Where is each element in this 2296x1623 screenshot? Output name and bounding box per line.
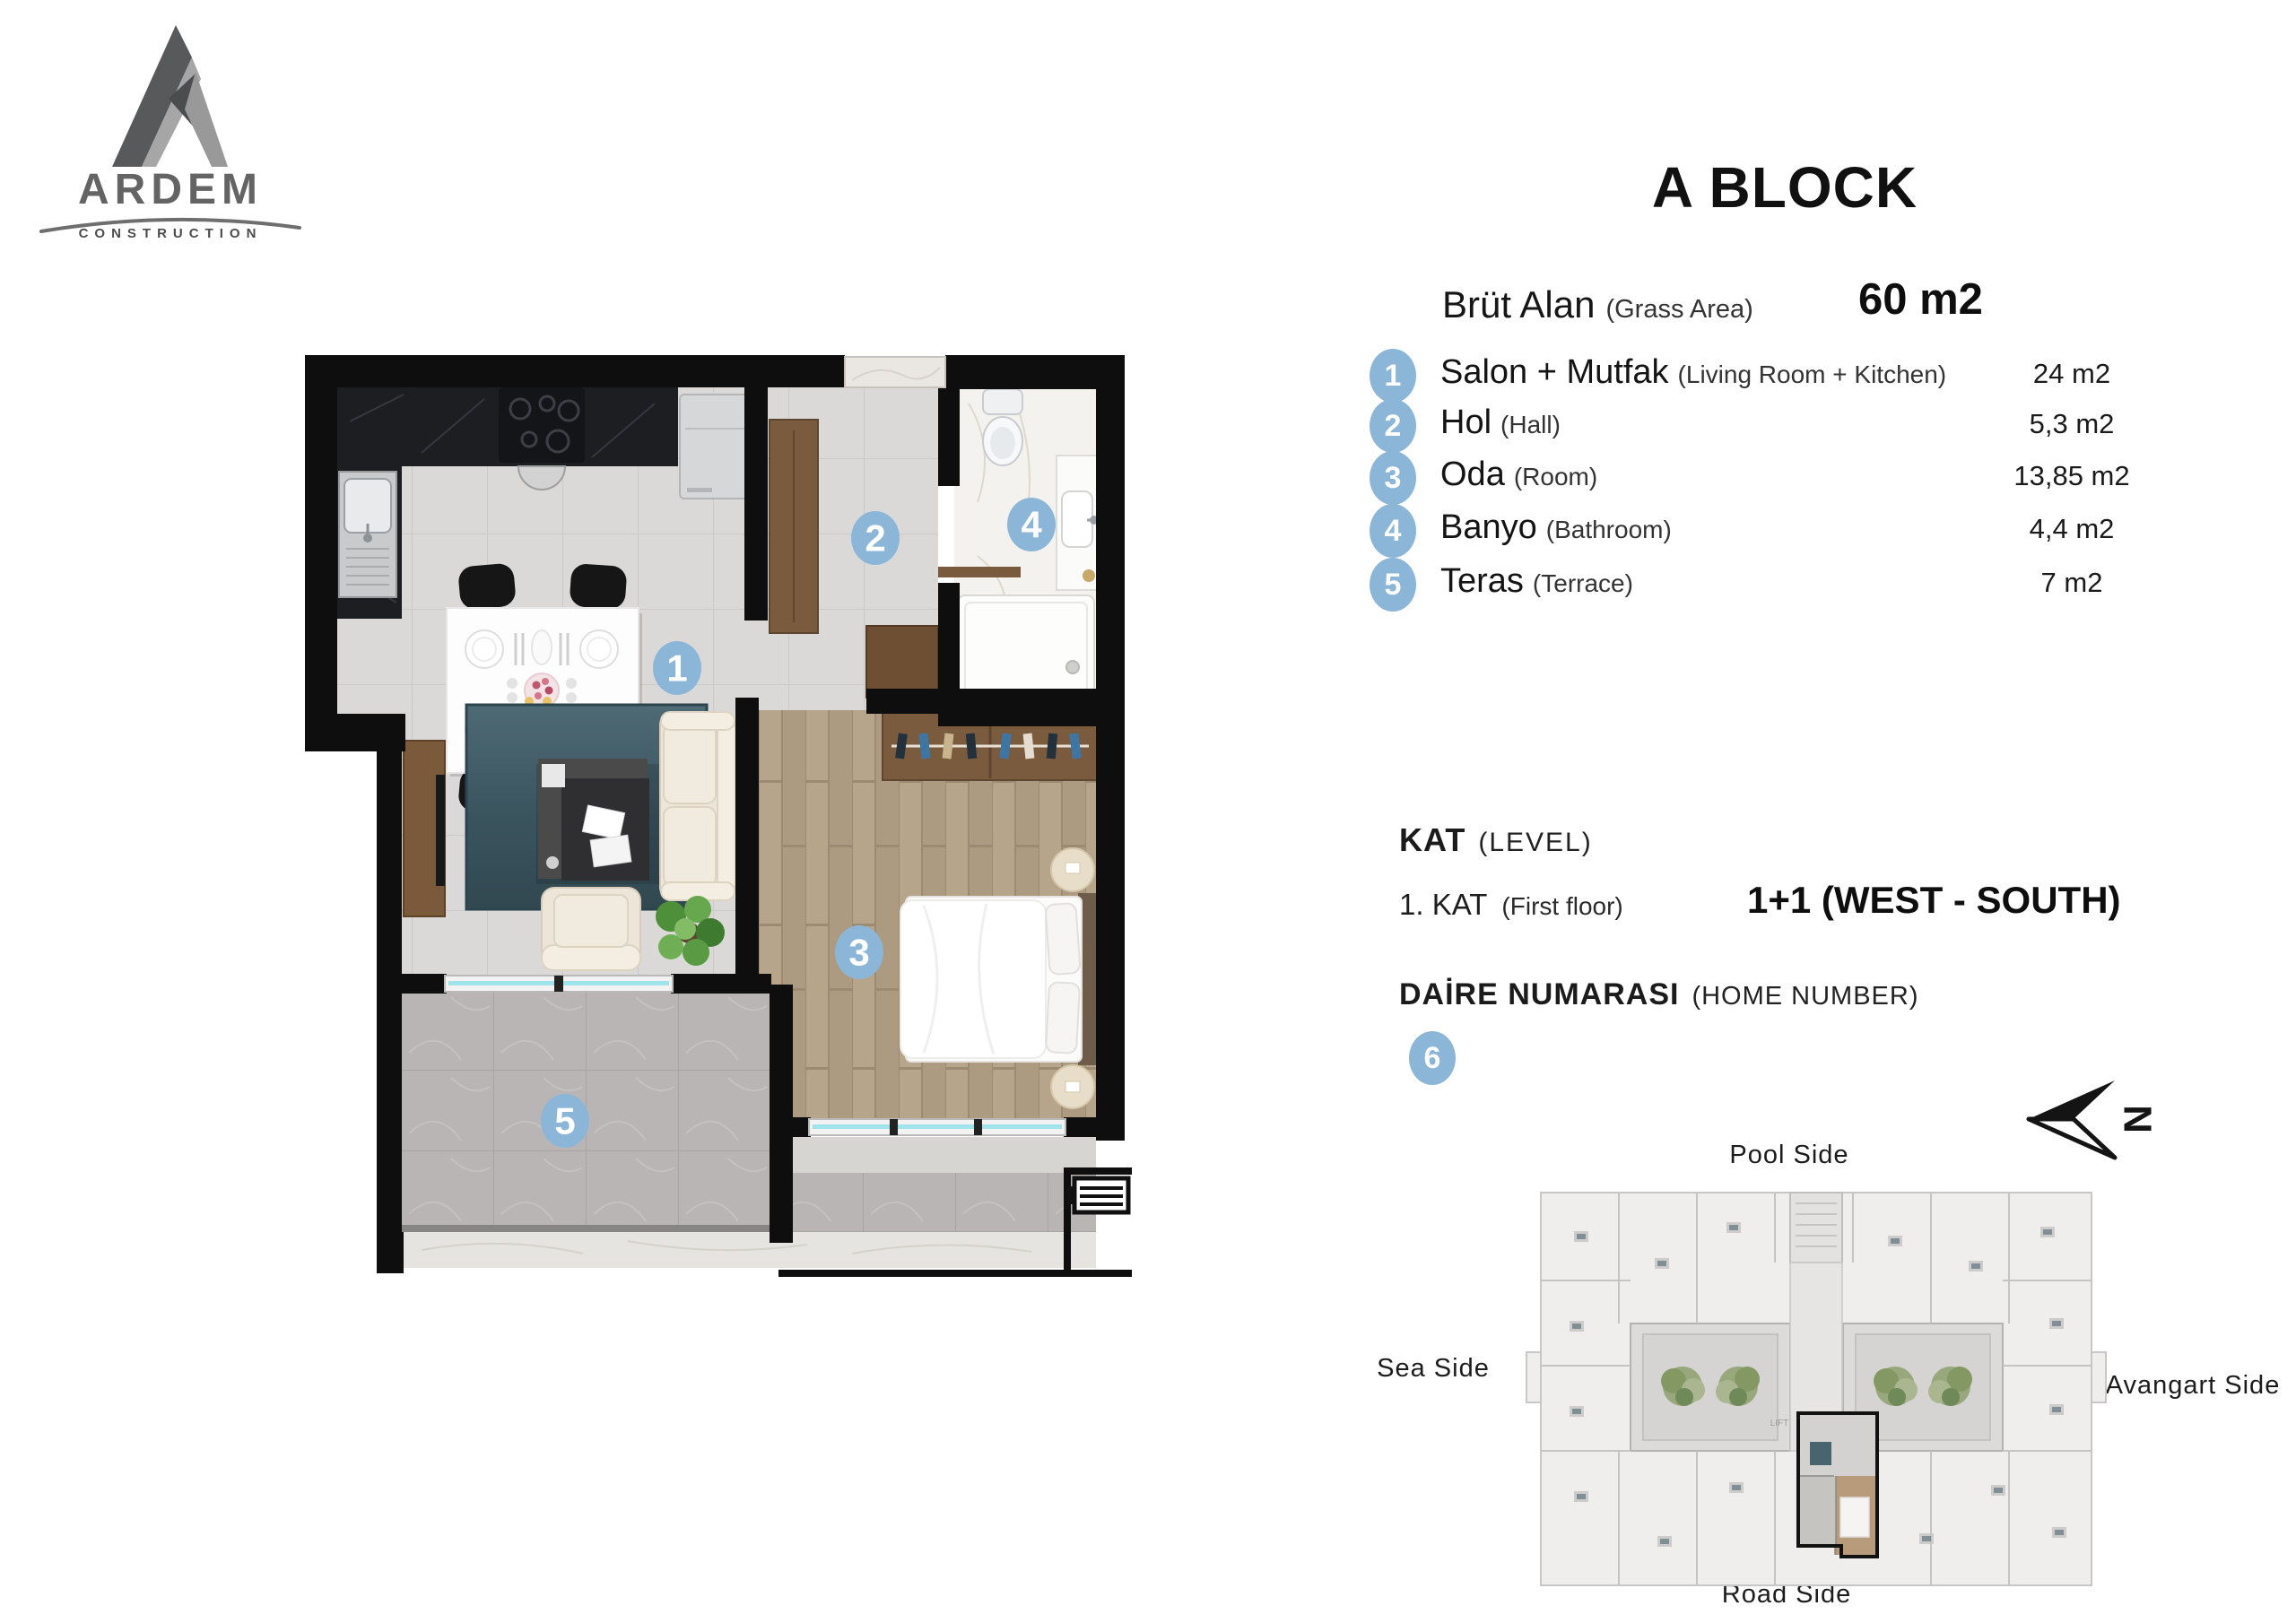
north-arrow-icon: N — [2022, 1072, 2166, 1175]
ardem-logo-mark-icon — [36, 7, 305, 169]
ac-unit-icon — [1067, 1178, 1128, 1212]
room-badge: 1 — [666, 647, 687, 690]
gross-area-label-en: (Grass Area) — [1605, 295, 1752, 325]
entrance-threshold — [845, 357, 945, 387]
bathroom-vanity — [1057, 456, 1099, 590]
room-list-badge: 1 — [1370, 349, 1416, 403]
terrace-rail — [402, 1225, 770, 1232]
room-badge: 4 — [1021, 504, 1042, 546]
room-area-value: 7 m2 — [1946, 567, 2197, 599]
coffee-table — [536, 759, 662, 884]
living-window — [445, 976, 673, 992]
site-label-pool: Pool Side — [1655, 1141, 1924, 1170]
room-area-value: 5,3 m2 — [1946, 408, 2197, 440]
room-badge: 2 — [865, 517, 885, 560]
room-list-badge: 3 — [1370, 451, 1416, 505]
refrigerator — [680, 395, 753, 499]
lift-label: LIFT — [1770, 1419, 1789, 1428]
room-list-item: Hol (Hall) — [1440, 404, 1561, 442]
room-list-item: Salon + Mutfak (Living Room + Kitchen) — [1440, 353, 1946, 392]
site-key-plan: LIFT — [1525, 1182, 2117, 1603]
sofa — [660, 712, 735, 900]
home-number-badge: 6 — [1409, 1031, 1456, 1085]
level-label-row: KAT (LEVEL) — [1399, 821, 1593, 859]
room-list-badge: 2 — [1370, 399, 1416, 453]
gross-area-value: 60 m2 — [1858, 274, 1983, 325]
gross-area-row: Brüt Alan (Grass Area) — [1442, 283, 1753, 326]
room-list-badge: 5 — [1370, 558, 1416, 612]
floor-plan: 1 2 3 4 5 — [300, 352, 1152, 1320]
bathroom-door — [938, 567, 1021, 577]
plan-type: 1+1 (WEST - SOUTH) — [1747, 879, 2121, 922]
bedroom-window — [809, 1119, 1065, 1135]
kitchen-sink — [339, 472, 396, 597]
armchair — [542, 888, 640, 970]
home-number-label-row: DAİRE NUMARASI (HOME NUMBER) — [1399, 977, 1919, 1012]
room-list-item: Oda (Room) — [1440, 456, 1597, 494]
room-badge: 5 — [554, 1100, 575, 1142]
hall-closet — [866, 626, 938, 698]
toilet — [983, 389, 1022, 465]
tv-console — [404, 741, 445, 916]
room-list-item: Teras (Terrace) — [1440, 562, 1633, 601]
north-label: N — [2116, 1105, 2160, 1133]
room-list-item: Banyo (Bathroom) — [1440, 508, 1672, 547]
room-area-value: 24 m2 — [1946, 358, 2197, 390]
highlighted-unit — [1798, 1413, 1877, 1557]
gross-area-label: Brüt Alan — [1442, 283, 1595, 326]
level-value-row: 1. KAT (First floor) — [1399, 888, 1623, 922]
page-title: A BLOCK — [1516, 154, 2054, 221]
bed — [900, 893, 1096, 1065]
room-area-value: 4,4 m2 — [1946, 513, 2197, 545]
shower-tray — [958, 595, 1094, 701]
room-area-value: 13,85 m2 — [1946, 460, 2197, 492]
room-list-badge: 4 — [1370, 504, 1416, 558]
room-badge: 3 — [848, 932, 869, 974]
logo-subtitle: CONSTRUCTION — [36, 226, 305, 241]
